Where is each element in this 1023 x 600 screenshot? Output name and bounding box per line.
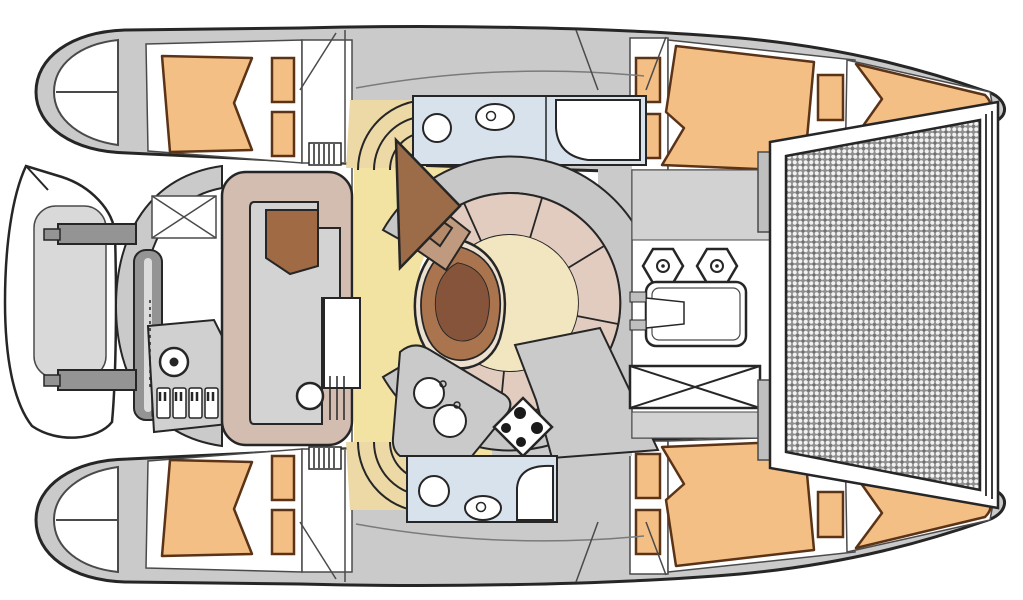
stove-burner (531, 422, 543, 434)
shower-pan (517, 466, 553, 520)
davit-arm (58, 370, 136, 390)
stove-burner (501, 423, 511, 433)
davit-arm-end (44, 229, 60, 240)
port-bathroom (413, 96, 646, 165)
trampoline (770, 102, 998, 508)
bathroom-sink (419, 476, 449, 506)
cockpit-stool (297, 383, 323, 409)
trampoline-net (786, 120, 980, 490)
catamaran-floor-plan (0, 0, 1023, 600)
cockpit-bench (324, 298, 360, 388)
winch-center (661, 264, 665, 268)
hatch-handle (646, 298, 684, 328)
toilet (465, 496, 501, 520)
catamaran-floor-plan-page (0, 0, 1023, 600)
galley-sink (434, 405, 466, 437)
bathroom-sink (423, 114, 451, 142)
steering-wheel-hub (170, 358, 179, 367)
stove-burner (516, 437, 526, 447)
stove-burner (514, 407, 526, 419)
davit-arm (58, 224, 136, 244)
hatch-hinge (630, 320, 646, 330)
galley-sink (414, 378, 444, 408)
winch-center (715, 264, 719, 268)
starboard-bathroom (407, 456, 557, 522)
davit-arm-end (44, 375, 60, 386)
shower-pan (556, 100, 640, 160)
cockpit-cushion (266, 210, 318, 274)
hatch-hinge (630, 292, 646, 302)
cockpit (222, 172, 360, 445)
